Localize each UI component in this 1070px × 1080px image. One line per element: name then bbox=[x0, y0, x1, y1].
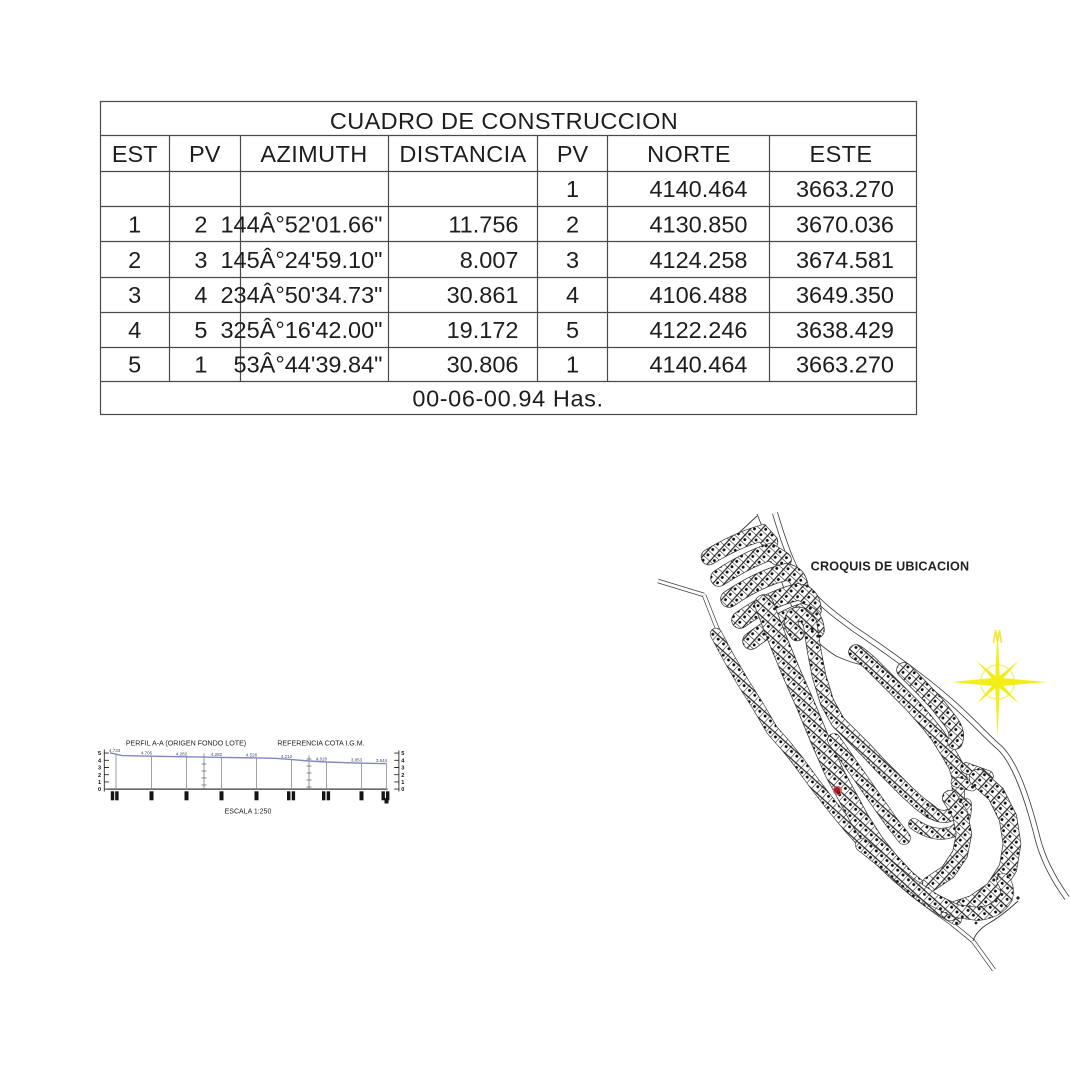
svg-text:4: 4 bbox=[401, 758, 405, 764]
svg-text:4: 4 bbox=[128, 317, 141, 343]
svg-text:4: 4 bbox=[98, 758, 102, 764]
svg-text:19.172: 19.172 bbox=[447, 317, 519, 343]
svg-text:4.282: 4.282 bbox=[211, 752, 223, 757]
svg-text:234Â°50'34.73": 234Â°50'34.73" bbox=[220, 282, 382, 308]
svg-text:4.526: 4.526 bbox=[246, 752, 258, 757]
svg-text:2: 2 bbox=[128, 247, 141, 273]
svg-text:3670.036: 3670.036 bbox=[796, 211, 894, 237]
svg-text:1: 1 bbox=[401, 780, 404, 786]
svg-text:5: 5 bbox=[401, 751, 404, 757]
svg-text:4.282: 4.282 bbox=[176, 751, 188, 756]
svg-text:3649.350: 3649.350 bbox=[796, 282, 894, 308]
svg-text:3: 3 bbox=[401, 766, 404, 772]
svg-text:11.756: 11.756 bbox=[448, 211, 518, 237]
svg-text:4130.850: 4130.850 bbox=[649, 211, 747, 237]
svg-text:3638.429: 3638.429 bbox=[796, 317, 894, 343]
svg-text:AZIMUTH: AZIMUTH bbox=[260, 141, 367, 167]
svg-text:3: 3 bbox=[128, 282, 141, 308]
svg-text:2: 2 bbox=[98, 773, 101, 779]
svg-text:2: 2 bbox=[401, 773, 404, 779]
svg-text:144Â°52'01.66": 144Â°52'01.66" bbox=[220, 211, 382, 237]
svg-text:4.212: 4.212 bbox=[281, 754, 293, 759]
svg-text:4122.246: 4122.246 bbox=[649, 317, 747, 343]
svg-text:1: 1 bbox=[128, 211, 141, 237]
svg-text:4140.464: 4140.464 bbox=[649, 352, 747, 378]
svg-text:30.861: 30.861 bbox=[447, 282, 519, 308]
svg-text:3: 3 bbox=[98, 766, 101, 772]
svg-text:5: 5 bbox=[128, 352, 141, 378]
svg-text:4: 4 bbox=[194, 282, 207, 308]
svg-text:5: 5 bbox=[194, 317, 207, 343]
svg-text:4.705: 4.705 bbox=[141, 751, 153, 756]
svg-text:0: 0 bbox=[98, 787, 101, 793]
svg-text:4106.488: 4106.488 bbox=[649, 282, 747, 308]
svg-text:ESCALA 1:250: ESCALA 1:250 bbox=[225, 809, 272, 816]
svg-text:4: 4 bbox=[566, 282, 579, 308]
svg-text:4.020: 4.020 bbox=[316, 757, 328, 762]
svg-text:145Â°24'59.10": 145Â°24'59.10" bbox=[220, 247, 382, 273]
svg-text:PERFIL A-A (ORIGEN FONDO LOTE): PERFIL A-A (ORIGEN FONDO LOTE) bbox=[126, 740, 246, 748]
svg-text:ESTE: ESTE bbox=[810, 141, 873, 167]
svg-text:PV: PV bbox=[189, 141, 221, 167]
svg-text:5: 5 bbox=[566, 317, 579, 343]
svg-text:5: 5 bbox=[98, 751, 101, 757]
svg-text:1: 1 bbox=[194, 352, 207, 378]
svg-text:CROQUIS DE UBICACION: CROQUIS DE UBICACION bbox=[811, 560, 970, 574]
svg-text:3663.270: 3663.270 bbox=[796, 176, 894, 202]
svg-text:2: 2 bbox=[194, 211, 207, 237]
svg-text:CUADRO DE CONSTRUCCION: CUADRO DE CONSTRUCCION bbox=[330, 108, 678, 134]
svg-text:REFERENCIA COTA I.G.M.: REFERENCIA COTA I.G.M. bbox=[277, 740, 364, 748]
svg-text:4.733: 4.733 bbox=[109, 748, 121, 753]
svg-text:PV: PV bbox=[557, 141, 589, 167]
svg-text:3: 3 bbox=[194, 247, 207, 273]
svg-text:325Â°16'42.00": 325Â°16'42.00" bbox=[220, 317, 382, 343]
svg-text:EST: EST bbox=[112, 141, 158, 167]
svg-text:0: 0 bbox=[401, 787, 404, 793]
svg-text:4124.258: 4124.258 bbox=[649, 247, 747, 273]
svg-text:3.853: 3.853 bbox=[351, 758, 363, 763]
svg-text:30.806: 30.806 bbox=[447, 352, 519, 378]
svg-text:1: 1 bbox=[566, 176, 579, 202]
svg-text:4140.464: 4140.464 bbox=[649, 176, 747, 202]
svg-text:53Â°44'39.84": 53Â°44'39.84" bbox=[234, 352, 383, 378]
svg-text:8.007: 8.007 bbox=[460, 247, 519, 273]
svg-text:3674.581: 3674.581 bbox=[796, 247, 894, 273]
svg-text:3663.270: 3663.270 bbox=[796, 352, 894, 378]
svg-text:DISTANCIA: DISTANCIA bbox=[399, 141, 526, 167]
svg-text:1: 1 bbox=[566, 352, 579, 378]
svg-text:NORTE: NORTE bbox=[647, 141, 731, 167]
svg-text:2: 2 bbox=[566, 211, 579, 237]
svg-text:00-06-00.94 Has.: 00-06-00.94 Has. bbox=[412, 385, 603, 411]
svg-text:3: 3 bbox=[566, 247, 579, 273]
svg-text:3.644: 3.644 bbox=[376, 758, 388, 763]
svg-text:1: 1 bbox=[98, 780, 101, 786]
